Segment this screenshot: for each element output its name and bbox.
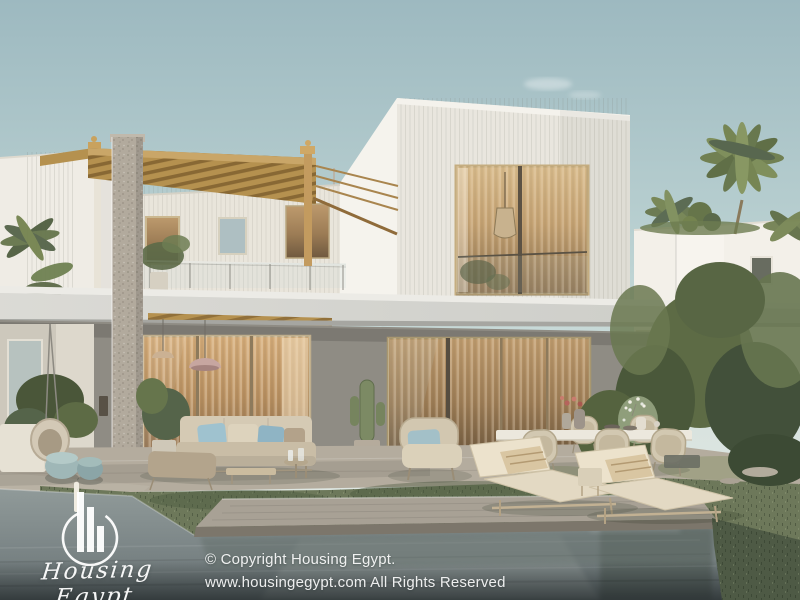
copyright-text: © Copyright Housing Egypt. www.housingeg… bbox=[205, 548, 506, 594]
chaise-ottoman bbox=[148, 451, 217, 479]
stone-bench bbox=[664, 455, 700, 468]
stepping-stone bbox=[720, 478, 740, 484]
upper-floor-volume bbox=[334, 98, 630, 302]
brand-script-text: Housing Egypt bbox=[1, 556, 192, 600]
terrace-window bbox=[219, 218, 246, 254]
coffee-table bbox=[226, 468, 276, 475]
copyright-line1: © Copyright Housing Egypt. bbox=[205, 548, 506, 571]
upper-window bbox=[456, 166, 588, 296]
wicker-pendant-lamp bbox=[494, 208, 516, 238]
stepping-stone bbox=[742, 467, 778, 477]
villa-render-image: Housing Egypt © Copyright Housing Egypt.… bbox=[0, 0, 800, 600]
bollard-lamp bbox=[74, 482, 79, 512]
villa-render-illustration bbox=[0, 0, 800, 600]
stone-pillar bbox=[110, 134, 145, 485]
lounger-side-table bbox=[578, 468, 602, 486]
copyright-line2: www.housingegypt.com All Rights Reserved bbox=[205, 571, 506, 594]
